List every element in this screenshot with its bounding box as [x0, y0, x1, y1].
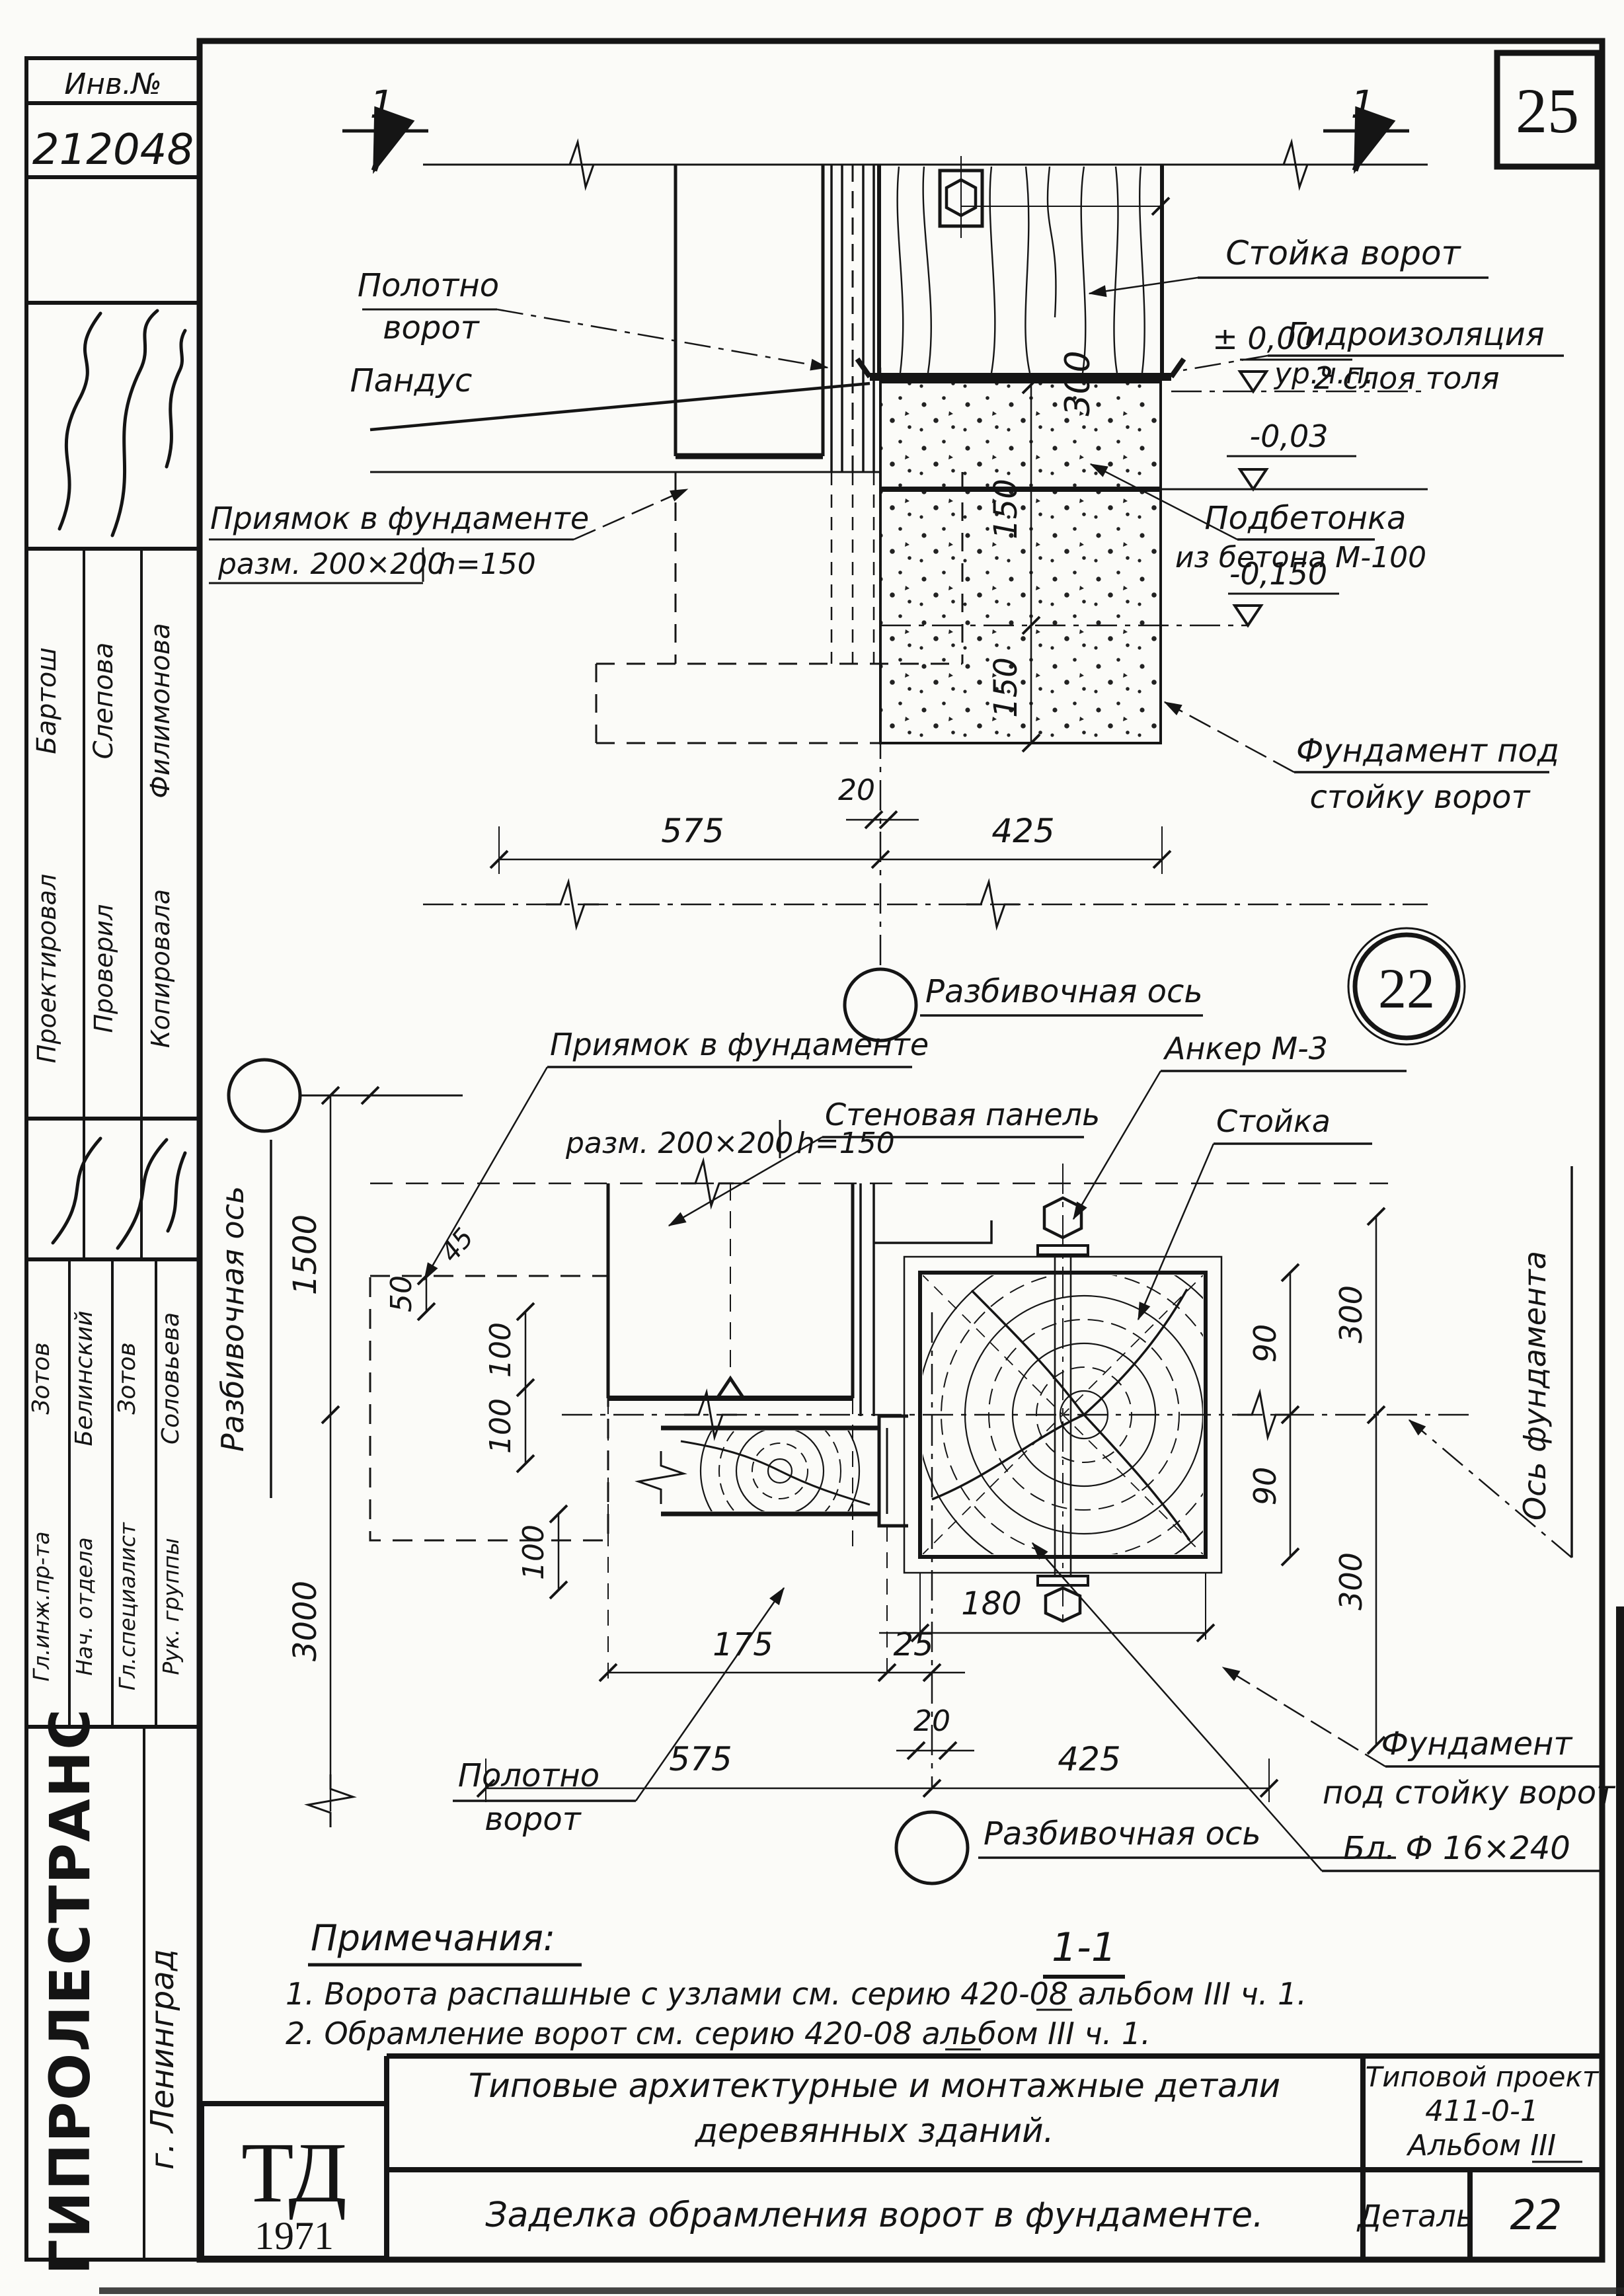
blueprint-sheet: Инв.№ 212048 Бартош Слепова Филимонова П…	[0, 0, 1624, 2296]
svg-text:h=150: h=150	[438, 547, 536, 581]
designer-role: Проектировал	[32, 874, 61, 1063]
series-title-line2: деревянных зданий.	[694, 2112, 1054, 2150]
gate-leaf-section	[831, 165, 874, 664]
label-stenovaya-panel: Стеновая панель	[669, 1097, 1100, 1226]
label-polotno: Полотно ворот	[358, 267, 828, 368]
notes-heading: Примечания:	[311, 1917, 555, 1959]
drawing-canvas: Инв.№ 212048 Бартош Слепова Филимонова П…	[0, 0, 1624, 2296]
svg-text:Разбивочная ось: Разбивочная ось	[215, 1186, 251, 1452]
label-stoika-vorot: Стойка ворот	[1089, 234, 1489, 294]
svg-text:2 слоя толя: 2 слоя толя	[1313, 360, 1499, 396]
svg-text:Анкер М-3: Анкер М-3	[1163, 1031, 1328, 1066]
page-number: 25	[1516, 75, 1579, 146]
svg-text:575: 575	[661, 812, 724, 850]
detail-label: Деталь	[1356, 2198, 1474, 2234]
lower-break-line	[423, 882, 1428, 927]
section-cut-mark-right: 1	[1323, 82, 1409, 171]
svg-text:3000: 3000	[287, 1581, 324, 1661]
label-fundament-section: Фундамент под стойку ворот	[1165, 702, 1559, 816]
dim-bottom-section: 20 575 425	[490, 773, 1171, 874]
designer-name: Бартош	[32, 647, 62, 754]
svg-text:Полотно: Полотно	[458, 1757, 599, 1794]
svg-text:Стойка: Стойка	[1216, 1103, 1331, 1139]
page-number-box: 25	[1497, 53, 1598, 167]
svg-text:стойку ворот: стойку ворот	[1309, 779, 1531, 816]
svg-text:425: 425	[991, 812, 1054, 850]
checker-role: Проверил	[89, 904, 118, 1033]
svg-text:Полотно: Полотно	[358, 267, 499, 304]
svg-text:180: 180	[961, 1585, 1022, 1622]
chief-eng-name: Зотов	[28, 1342, 55, 1414]
copier-name: Филимонова	[145, 623, 176, 798]
checker-name: Слепова	[89, 643, 119, 760]
svg-text:под стойку ворот: под стойку ворот	[1323, 1774, 1616, 1811]
group-lead-role: Рук. группы	[158, 1538, 184, 1675]
svg-text:575: 575	[669, 1740, 732, 1778]
note-item: 2. Обрамление ворот см. серию 420-08 аль…	[286, 2016, 1151, 2051]
plan-view: 22 Разбивочная ось 1500 3000 50 45 100 1…	[215, 928, 1616, 1977]
note-item: 1. Ворота распашные с узлами см. серию 4…	[286, 1976, 1307, 2012]
svg-text:Приямок в фундаменте: Приямок в фундаменте	[210, 500, 589, 536]
project-line2: 411-0-1	[1425, 2094, 1539, 2128]
specialist-name: Зотов	[114, 1342, 141, 1414]
inv-number: 212048	[32, 126, 194, 175]
gate-frame-plan	[861, 1183, 991, 1416]
level-003: -0,03	[1249, 418, 1328, 454]
svg-text:90: 90	[1247, 1324, 1283, 1363]
svg-text:45: 45	[435, 1222, 480, 1268]
svg-text:100: 100	[484, 1322, 518, 1378]
svg-text:150: 150	[987, 479, 1025, 539]
section-view: 1 1	[209, 82, 1564, 1041]
copier-role: Копировала	[146, 889, 175, 1048]
svg-text:Разбивочная ось: Разбивочная ось	[925, 973, 1203, 1010]
group-lead-name: Соловьева	[157, 1312, 184, 1445]
org-city: г. Ленинград	[144, 1949, 181, 2170]
svg-text:100: 100	[484, 1398, 518, 1454]
section-title: 1-1	[1043, 1924, 1125, 1977]
svg-text:300: 300	[1333, 1552, 1369, 1610]
svg-text:20: 20	[838, 773, 875, 807]
gate-post-plan	[904, 1164, 1251, 1626]
logo-year: 1971	[254, 2214, 334, 2258]
inv-label: Инв.№	[64, 67, 161, 101]
detail-number: 22	[1510, 2191, 1563, 2239]
series-title-line1: Типовые архитектурные и монтажные детали	[469, 2067, 1280, 2105]
svg-text:ворот: ворот	[484, 1801, 582, 1838]
svg-text:1-1: 1-1	[1052, 1924, 1116, 1971]
sidebar: Инв.№ 212048 Бартош Слепова Филимонова П…	[28, 67, 194, 2275]
specialist-role: Гл.специалист	[114, 1521, 140, 1690]
wood-grain	[898, 167, 1145, 373]
chief-eng-role: Гл.инж.пр-та	[28, 1531, 54, 1681]
svg-text:Фундамент под: Фундамент под	[1296, 732, 1559, 770]
title-block: ТД 1971 Типовые архитектурные и монтажны…	[202, 2056, 1602, 2260]
svg-text:1500: 1500	[287, 1214, 324, 1295]
layout-axis-bottom: Разбивочная ось	[896, 1812, 1396, 1883]
svg-text:Приямок в фундаменте: Приямок в фундаменте	[550, 1027, 929, 1062]
hydroisolation-line	[857, 359, 1184, 377]
svg-text:90: 90	[1247, 1467, 1283, 1506]
svg-text:Стеновая панель: Стеновая панель	[825, 1097, 1100, 1132]
svg-text:25: 25	[893, 1626, 933, 1663]
svg-text:Ось фундамента: Ось фундамента	[1517, 1251, 1553, 1521]
project-line3: Альбом III	[1406, 2129, 1556, 2162]
svg-text:Фундамент: Фундамент	[1381, 1725, 1574, 1762]
svg-text:Гидроизоляция: Гидроизоляция	[1287, 316, 1544, 353]
svg-text:1: 1	[370, 82, 395, 127]
dim-chains-left: 1500 3000 50 45 100 100 100	[287, 1087, 567, 1827]
svg-text:175: 175	[713, 1626, 773, 1663]
svg-text:Подбетонка: Подбетонка	[1205, 500, 1407, 537]
svg-text:22: 22	[1378, 957, 1435, 1020]
logo-box: ТД 1971	[241, 2125, 347, 2258]
svg-text:425: 425	[1058, 1740, 1120, 1778]
label-polotno-plan: Полотно ворот	[453, 1588, 784, 1838]
notes: Примечания: 1. Ворота распашные с узлами…	[286, 1917, 1307, 2051]
svg-text:50: 50	[385, 1275, 418, 1312]
svg-text:300: 300	[1333, 1285, 1369, 1343]
svg-text:Стойка ворот: Стойка ворот	[1225, 234, 1461, 272]
wall-panel-section	[676, 165, 823, 456]
svg-text:из бетона М-100: из бетона М-100	[1175, 541, 1426, 574]
svg-text:ворот: ворот	[383, 309, 480, 346]
svg-text:Разбивочная ось: Разбивочная ось	[984, 1815, 1261, 1852]
svg-text:разм. 200×200: разм. 200×200	[565, 1127, 793, 1160]
svg-text:150: 150	[987, 657, 1025, 718]
post-bolt	[940, 156, 1169, 238]
svg-text:разм. 200×200: разм. 200×200	[217, 547, 445, 581]
logo-td: ТД	[241, 2125, 347, 2221]
svg-text:Бл. Ф 16×240: Бл. Ф 16×240	[1343, 1830, 1570, 1867]
dept-head-name: Белинский	[71, 1310, 98, 1446]
svg-text:100: 100	[517, 1524, 551, 1580]
section-cut-mark-left: 1	[342, 82, 428, 171]
svg-text:1: 1	[1351, 82, 1375, 127]
svg-text:20: 20	[913, 1704, 950, 1738]
org-name: ГИПРОЛЕСТРАНС	[38, 1708, 102, 2275]
dim-chains-right: 90 90 300 300	[1247, 1208, 1385, 1754]
dept-head-role: Нач. отдела	[71, 1537, 97, 1675]
sheet-title: Заделка обрамления ворот в фундаменте.	[485, 2196, 1263, 2235]
label-fundament-plan: Фундамент под стойку ворот	[1223, 1667, 1616, 1811]
top-cut-line	[423, 142, 1428, 187]
label-pandus: Пандус	[350, 362, 473, 399]
project-line1: Типовой проект	[1366, 2061, 1600, 2093]
detail-circle: 22	[1348, 928, 1465, 1045]
wall-panel-plan	[608, 1161, 853, 1398]
label-priyamok-section: Приямок в фундаменте разм. 200×200 h=150	[209, 489, 687, 583]
label-os-fundamenta: Ось фундамента	[1409, 1166, 1572, 1558]
